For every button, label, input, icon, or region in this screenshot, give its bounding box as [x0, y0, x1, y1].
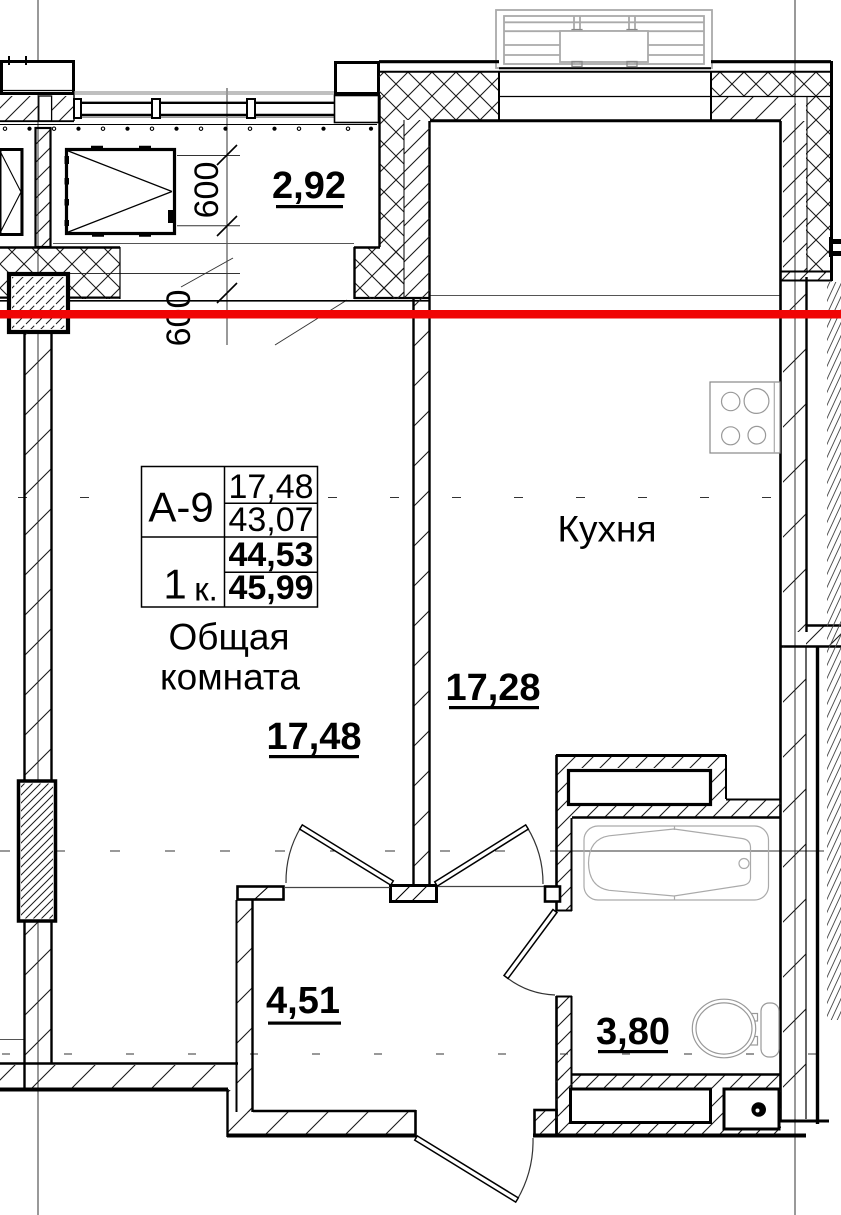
svg-text:43,07: 43,07 [228, 501, 313, 539]
svg-text:Кухня: Кухня [557, 509, 656, 550]
svg-text:4,51: 4,51 [266, 980, 340, 1022]
svg-text:1: 1 [163, 561, 186, 608]
svg-text:2,92: 2,92 [272, 165, 346, 207]
svg-text:к.: к. [194, 571, 218, 608]
svg-text:А-9: А-9 [148, 484, 213, 531]
svg-text:комната: комната [160, 657, 300, 698]
svg-text:Общая: Общая [168, 617, 289, 658]
svg-text:17,48: 17,48 [266, 716, 361, 758]
svg-text:45,99: 45,99 [228, 569, 313, 607]
svg-text:600: 600 [188, 162, 226, 219]
svg-text:17,28: 17,28 [445, 667, 540, 709]
svg-text:3,80: 3,80 [596, 1011, 670, 1053]
